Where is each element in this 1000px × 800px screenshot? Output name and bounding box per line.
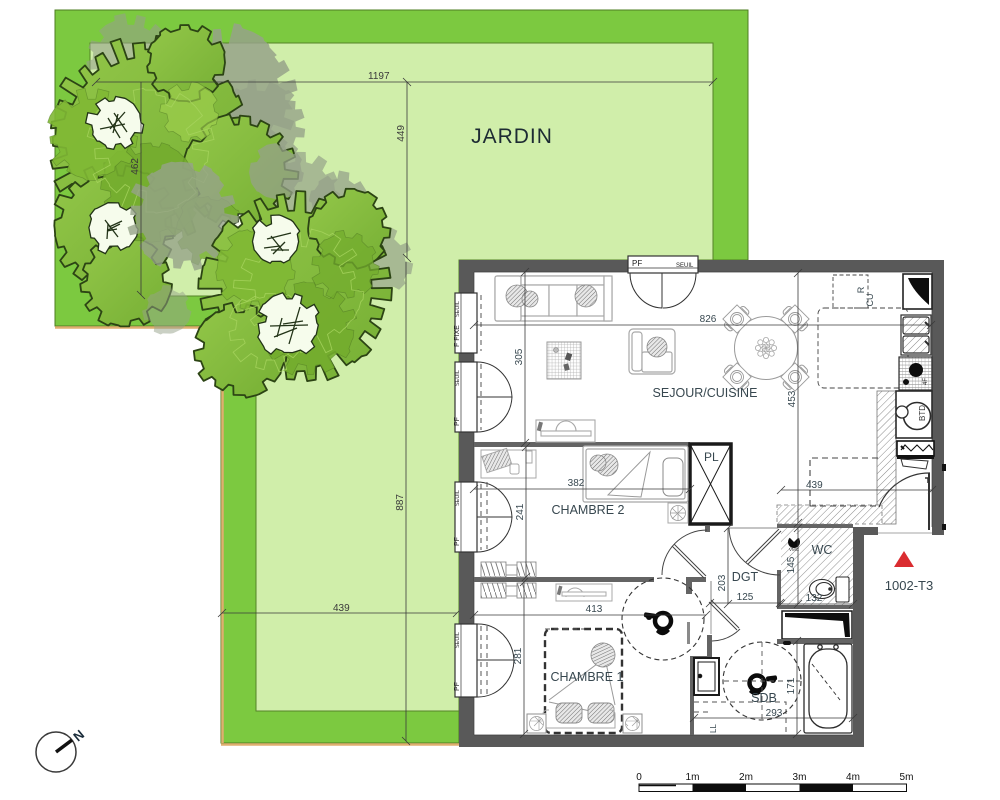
svg-text:439: 439 <box>806 480 823 491</box>
svg-text:R: R <box>856 286 866 293</box>
svg-text:887: 887 <box>395 494 406 511</box>
svg-text:462: 462 <box>130 158 141 175</box>
svg-text:SEUIL: SEUIL <box>455 370 461 386</box>
svg-text:293: 293 <box>766 708 783 719</box>
svg-text:449: 449 <box>396 125 407 142</box>
svg-text:382: 382 <box>568 478 585 489</box>
svg-text:CU: CU <box>865 294 875 307</box>
svg-text:3m: 3m <box>793 772 807 783</box>
svg-text:JARDIN: JARDIN <box>471 125 553 148</box>
svg-text:1m: 1m <box>686 772 700 783</box>
svg-text:4m: 4m <box>846 772 860 783</box>
svg-text:F FIXE: F FIXE <box>454 325 461 347</box>
svg-text:826: 826 <box>700 314 717 325</box>
svg-text:SEUIL: SEUIL <box>676 263 694 269</box>
svg-text:SEUIL: SEUIL <box>455 632 461 648</box>
svg-text:453: 453 <box>787 390 798 407</box>
svg-text:413: 413 <box>586 604 603 615</box>
svg-text:SEUIL: SEUIL <box>455 301 461 317</box>
svg-text:1197: 1197 <box>368 71 390 82</box>
svg-text:5m: 5m <box>900 772 914 783</box>
svg-text:281: 281 <box>513 647 524 664</box>
svg-text:0: 0 <box>636 772 642 783</box>
svg-text:241: 241 <box>515 503 526 520</box>
svg-text:CHAMBRE 2: CHAMBRE 2 <box>552 503 625 517</box>
svg-text:PF: PF <box>454 682 461 691</box>
svg-text:203: 203 <box>717 574 728 591</box>
svg-text:2m: 2m <box>739 772 753 783</box>
svg-text:PF: PF <box>454 417 461 426</box>
svg-text:SEUIL: SEUIL <box>455 490 461 506</box>
svg-text:145: 145 <box>786 556 797 573</box>
svg-text:4F: 4F <box>923 378 929 385</box>
svg-text:WC: WC <box>812 543 833 557</box>
svg-text:1002-T3: 1002-T3 <box>885 578 933 593</box>
svg-text:439: 439 <box>333 603 350 614</box>
svg-text:SDB: SDB <box>751 691 777 705</box>
svg-text:125: 125 <box>737 592 754 603</box>
svg-text:SEJOUR/CUISINE: SEJOUR/CUISINE <box>653 386 758 400</box>
svg-text:PF: PF <box>632 259 642 268</box>
svg-text:132: 132 <box>806 593 823 604</box>
svg-text:LL: LL <box>709 724 718 733</box>
svg-text:PL: PL <box>704 450 719 464</box>
svg-text:PF: PF <box>454 537 461 546</box>
svg-text:305: 305 <box>514 348 525 365</box>
svg-text:171: 171 <box>786 677 797 694</box>
svg-text:DGT: DGT <box>732 570 759 584</box>
svg-text:BTD: BTD <box>918 405 927 421</box>
svg-text:CHAMBRE 1: CHAMBRE 1 <box>551 670 624 684</box>
